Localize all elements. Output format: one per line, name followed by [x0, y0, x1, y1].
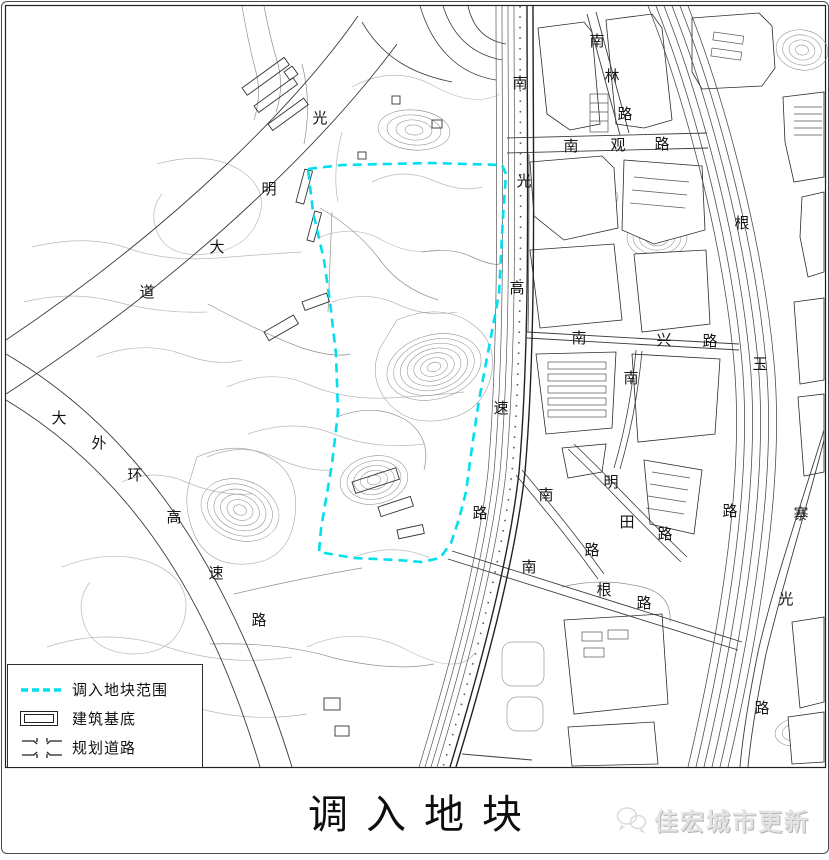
road-label-大外环高速路: 环 — [127, 468, 142, 484]
road-label-南: 南 — [623, 370, 638, 387]
legend-label: 调入地块范围 — [72, 679, 168, 700]
road-label-明田路: 明 — [603, 474, 618, 491]
road-label-大外环高速路: 高 — [166, 509, 181, 526]
map-canvas: 光明大道大外环高速路南光高速路南林路南观路根玉路南兴路南明田路南路南根路寨光路 — [2, 2, 828, 769]
road-label-南观路: 南 — [563, 138, 578, 155]
road-label-南兴路: 兴 — [656, 332, 671, 349]
road-label-南兴路: 南 — [571, 330, 586, 347]
map-title: 调入地块 — [290, 782, 540, 840]
road-label-南根路: 南 — [521, 559, 536, 576]
contour-hills-layer — [187, 26, 828, 749]
road-label-明田路: 路 — [657, 526, 672, 543]
legend-item-building: 建筑基底 — [20, 704, 202, 733]
legend-item-boundary: 调入地块范围 — [20, 675, 202, 704]
road-label-南光高速路: 光 — [516, 173, 531, 190]
planning-map-sheet: 光明大道大外环高速路南光高速路南林路南观路根玉路南兴路南明田路南路南根路寨光路 … — [1, 1, 829, 854]
legend-label: 建筑基底 — [72, 708, 136, 729]
watermark-text: 佳宏城市更新 — [654, 802, 810, 837]
road-label-寨光路: 路 — [754, 700, 769, 717]
watermark: 佳宏城市更新 — [615, 802, 810, 837]
road-label-光明大道: 光 — [312, 110, 327, 127]
road-label-南路: 南 — [538, 487, 553, 504]
road-label-根玉路: 根 — [734, 215, 749, 232]
road-label-大外环高速路: 外 — [91, 435, 106, 452]
legend: 调入地块范围 建筑基底 规划道路 — [7, 664, 203, 767]
road-label-光明大道: 大 — [209, 239, 224, 256]
road-label-南光高速路: 南 — [512, 75, 527, 92]
road-label-光明大道: 道 — [139, 284, 154, 301]
city-blocks-layer — [530, 13, 824, 766]
road-label-寨光路: 寨 — [793, 505, 808, 523]
road-label-大外环高速路: 速 — [208, 565, 223, 582]
wechat-icon — [615, 806, 647, 833]
road-label-大外环高速路: 大 — [51, 410, 66, 427]
road-label-根玉路: 路 — [722, 503, 737, 520]
legend-label: 规划道路 — [72, 737, 136, 758]
road-label-明田路: 田 — [619, 515, 634, 531]
boundary-dashed-icon — [20, 683, 72, 697]
road-label-南林路: 路 — [617, 106, 632, 123]
road-label-南根路: 根 — [596, 582, 611, 599]
road-label-根玉路: 玉 — [752, 357, 767, 373]
planned-road-icon — [20, 736, 72, 760]
road-label-南林路: 南 — [589, 33, 604, 50]
road-label-南光高速路: 速 — [493, 400, 508, 417]
road-label-大外环高速路: 路 — [251, 612, 266, 629]
road-label-南根路: 路 — [636, 595, 651, 612]
map: 光明大道大外环高速路南光高速路南林路南观路根玉路南兴路南明田路南路南根路寨光路 — [2, 2, 828, 769]
road-label-南光高速路: 高 — [509, 280, 524, 297]
road-label-南兴路: 路 — [702, 333, 717, 350]
road-label-南路: 路 — [584, 542, 599, 559]
road-label-光明大道: 明 — [261, 181, 276, 198]
road-label-南林路: 林 — [604, 68, 619, 85]
building-footprint-icon — [20, 711, 72, 726]
road-label-南观路: 路 — [654, 136, 669, 153]
road-label-南光高速路: 路 — [472, 505, 487, 522]
legend-item-road: 规划道路 — [20, 733, 202, 762]
plot-boundary — [308, 163, 506, 562]
road-label-寨光路: 光 — [778, 591, 793, 608]
road-label-南观路: 观 — [610, 137, 625, 154]
